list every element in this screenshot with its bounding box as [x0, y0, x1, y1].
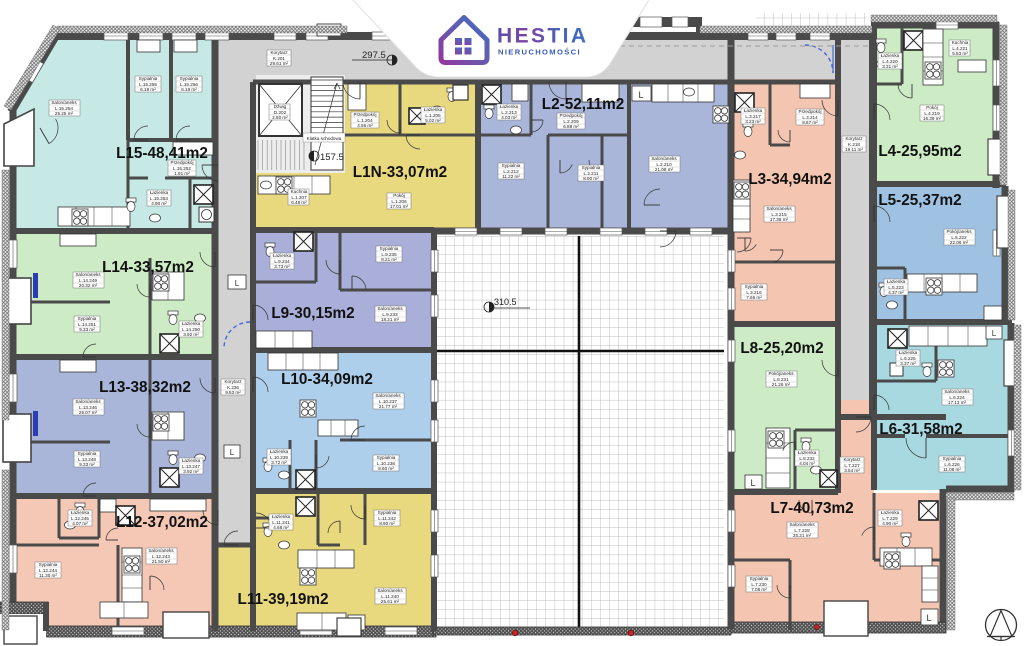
svg-text:Salon/aneks: Salon/aneks: [51, 100, 77, 105]
svg-text:297.5: 297.5: [362, 50, 386, 61]
svg-text:Salon/aneks: Salon/aneks: [377, 588, 403, 593]
svg-text:Przedpokój: Przedpokój: [560, 113, 583, 118]
svg-text:Salon/aneks: Salon/aneks: [377, 306, 403, 311]
svg-text:L12-37,02m2: L12-37,02m2: [116, 514, 208, 531]
svg-text:3.92 m²: 3.92 m²: [183, 332, 199, 337]
svg-text:3.72 m²: 3.72 m²: [271, 460, 287, 465]
svg-text:21.77 m²: 21.77 m²: [379, 404, 398, 409]
svg-text:4.37 m²: 4.37 m²: [888, 290, 904, 295]
svg-text:5.63 m²: 5.63 m²: [952, 51, 968, 56]
svg-text:Salon/aneks: Salon/aneks: [148, 548, 174, 553]
svg-text:Przedpokój: Przedpokój: [354, 112, 377, 117]
svg-text:9.33 m²: 9.33 m²: [79, 327, 95, 332]
svg-text:4.07 m²: 4.07 m²: [72, 521, 88, 526]
svg-text:4.56 m²: 4.56 m²: [357, 123, 373, 128]
svg-text:Salon/aneks: Salon/aneks: [789, 522, 815, 527]
svg-text:Łazienka: Łazienka: [899, 350, 918, 355]
svg-text:L7-40,73m2: L7-40,73m2: [770, 500, 853, 517]
svg-text:Pokój: Pokój: [926, 105, 938, 110]
svg-text:4.90 m²: 4.90 m²: [882, 521, 898, 526]
svg-text:16.39 m²: 16.39 m²: [923, 116, 942, 121]
svg-text:L: L: [992, 329, 997, 338]
svg-text:11.30 m²: 11.30 m²: [39, 573, 57, 578]
svg-text:25.25 m²: 25.25 m²: [55, 111, 74, 116]
svg-text:Łazienka: Łazienka: [272, 514, 291, 519]
svg-text:Łazienka: Łazienka: [744, 108, 763, 113]
svg-text:19.11 m²: 19.11 m²: [845, 147, 863, 152]
svg-text:Łazienka: Łazienka: [500, 104, 519, 109]
svg-text:9.33 m²: 9.33 m²: [79, 462, 95, 467]
svg-text:Korytarz: Korytarz: [845, 136, 863, 141]
svg-text:L6-31,58m2: L6-31,58m2: [879, 421, 962, 438]
svg-text:2.80 m²: 2.80 m²: [272, 115, 288, 120]
svg-text:Salon/aneks: Salon/aneks: [75, 272, 101, 277]
svg-text:3.73 m²: 3.73 m²: [274, 264, 290, 269]
svg-text:4.68 m²: 4.68 m²: [273, 525, 289, 530]
svg-text:L9-30,15m2: L9-30,15m2: [271, 305, 354, 322]
svg-text:22.06 m²: 22.06 m²: [950, 240, 969, 245]
svg-text:Salon/aneks: Salon/aneks: [651, 156, 677, 161]
svg-text:6.48 m²: 6.48 m²: [291, 200, 307, 205]
svg-text:NIERUCHOMOŚCI: NIERUCHOMOŚCI: [498, 48, 581, 57]
svg-text:Salon/aneks: Salon/aneks: [75, 399, 101, 404]
svg-text:Łazienka: Łazienka: [424, 107, 443, 112]
svg-text:L10-34,09m2: L10-34,09m2: [281, 371, 373, 388]
svg-text:17.13 m²: 17.13 m²: [948, 400, 967, 405]
svg-text:157.5: 157.5: [320, 152, 344, 163]
svg-text:Przedpokój: Przedpokój: [799, 109, 822, 114]
svg-text:L1N-33,07m2: L1N-33,07m2: [353, 164, 447, 181]
svg-text:HESTIA: HESTIA: [497, 25, 588, 48]
svg-text:4.04 m²: 4.04 m²: [799, 461, 815, 466]
svg-text:L14-33,57m2: L14-33,57m2: [102, 259, 194, 276]
svg-text:6.19 m²: 6.19 m²: [181, 87, 197, 92]
svg-text:L5-25,37m2: L5-25,37m2: [878, 192, 961, 209]
svg-text:25.07 m²: 25.07 m²: [79, 410, 98, 415]
svg-text:8.67 m²: 8.67 m²: [802, 120, 818, 125]
svg-text:20.32 m²: 20.32 m²: [79, 283, 98, 288]
svg-text:Sypialnia: Sypialnia: [39, 562, 58, 567]
svg-text:L: L: [235, 279, 240, 288]
svg-text:Sypialnia: Sypialnia: [377, 455, 396, 460]
svg-text:Sypialnia: Sypialnia: [78, 451, 97, 456]
svg-text:Łazienka: Łazienka: [881, 510, 900, 515]
svg-text:8.90 m²: 8.90 m²: [379, 521, 395, 526]
svg-text:3.37 m²: 3.37 m²: [900, 361, 916, 366]
svg-text:L13-38,32m2: L13-38,32m2: [99, 379, 191, 396]
svg-text:6.19 m²: 6.19 m²: [140, 87, 156, 92]
svg-text:Sypialnia: Sypialnia: [750, 576, 769, 581]
svg-text:8.60 m²: 8.60 m²: [378, 466, 394, 471]
svg-text:Korytarz: Korytarz: [224, 379, 242, 384]
svg-text:21.08 m²: 21.08 m²: [655, 167, 674, 172]
svg-text:Łazienka: Łazienka: [150, 190, 169, 195]
svg-text:25.61 m²: 25.61 m²: [381, 599, 400, 604]
svg-text:Sypialnia: Sypialnia: [943, 456, 962, 461]
svg-text:Kuchnia: Kuchnia: [291, 189, 308, 194]
svg-text:L: L: [926, 613, 931, 623]
svg-text:21.50 m²: 21.50 m²: [152, 559, 171, 564]
svg-text:Łazienka: Łazienka: [182, 321, 201, 326]
svg-text:Sypialnia: Sypialnia: [139, 76, 158, 81]
svg-text:L: L: [750, 478, 755, 488]
svg-text:Pokój: Pokój: [393, 193, 405, 198]
svg-text:L4-25,95m2: L4-25,95m2: [878, 143, 961, 160]
svg-text:4.90 m²: 4.90 m²: [151, 201, 167, 206]
svg-text:18.21 m²: 18.21 m²: [381, 317, 400, 322]
svg-text:Sypialnia: Sypialnia: [745, 284, 764, 289]
svg-text:3.31 m²: 3.31 m²: [882, 64, 898, 69]
svg-text:L3-34,94m2: L3-34,94m2: [748, 171, 831, 188]
svg-text:Sypialnia: Sypialnia: [180, 76, 199, 81]
svg-text:Sypialnia: Sypialnia: [78, 316, 97, 321]
svg-text:Dźwig: Dźwig: [274, 104, 287, 109]
svg-text:L15-48,41m2: L15-48,41m2: [116, 145, 208, 162]
svg-text:L11-39,19m2: L11-39,19m2: [238, 591, 329, 608]
svg-text:11.22 m²: 11.22 m²: [502, 174, 520, 179]
svg-text:25.21 m²: 25.21 m²: [793, 533, 812, 538]
svg-text:Sypialnia: Sypialnia: [378, 510, 397, 515]
svg-text:Sypialnia: Sypialnia: [502, 163, 521, 168]
svg-text:Łazienka: Łazienka: [71, 510, 90, 515]
svg-text:29.61 m²: 29.61 m²: [270, 61, 289, 66]
svg-text:3.92 m²: 3.92 m²: [183, 469, 199, 474]
svg-text:Łazienka: Łazienka: [270, 449, 289, 454]
svg-text:Salon/aneks: Salon/aneks: [766, 206, 792, 211]
svg-text:Łazienka: Łazienka: [887, 279, 906, 284]
svg-text:L: L: [638, 90, 643, 100]
svg-text:L: L: [230, 448, 235, 457]
svg-text:Łazienka: Łazienka: [798, 450, 817, 455]
svg-text:6.88 m²: 6.88 m²: [563, 124, 579, 129]
svg-text:Sypialnia: Sypialnia: [380, 246, 399, 251]
svg-text:1.91 m²: 1.91 m²: [174, 171, 190, 176]
svg-text:7.08 m²: 7.08 m²: [751, 587, 767, 592]
svg-text:8.90 m²: 8.90 m²: [583, 176, 599, 181]
svg-text:Łazienka: Łazienka: [273, 253, 292, 258]
svg-text:Pokój/aneks: Pokój/aneks: [768, 371, 794, 376]
svg-text:L8-25,20m2: L8-25,20m2: [740, 340, 823, 357]
svg-text:L2-52,11m2: L2-52,11m2: [542, 96, 625, 113]
svg-text:21.26 m²: 21.26 m²: [772, 382, 791, 387]
svg-text:4.03 m²: 4.03 m²: [501, 115, 517, 120]
svg-text:Salon/aneks: Salon/aneks: [375, 393, 401, 398]
svg-text:3.54 m²: 3.54 m²: [844, 468, 860, 473]
svg-text:310.5: 310.5: [494, 297, 517, 307]
svg-text:Kuchnia: Kuchnia: [952, 40, 969, 45]
svg-text:3.23 m²: 3.23 m²: [745, 119, 761, 124]
svg-text:7.66 m²: 7.66 m²: [746, 295, 762, 300]
svg-text:Klatka schodowa: Klatka schodowa: [307, 136, 342, 141]
svg-text:17.01 m²: 17.01 m²: [390, 204, 409, 209]
svg-text:Łazienka: Łazienka: [182, 458, 201, 463]
svg-text:17.38 m²: 17.38 m²: [770, 217, 789, 222]
svg-text:Łazienka: Łazienka: [881, 53, 900, 58]
svg-text:Korytarz: Korytarz: [843, 457, 861, 462]
svg-text:5.02 m²: 5.02 m²: [425, 118, 441, 123]
svg-text:Salon/aneks: Salon/aneks: [944, 389, 970, 394]
svg-text:Sypialnia: Sypialnia: [582, 165, 601, 170]
svg-text:8.21 m²: 8.21 m²: [381, 257, 397, 262]
svg-text:Pokój/aneks: Pokój/aneks: [946, 229, 972, 234]
svg-text:11.08 m²: 11.08 m²: [943, 467, 961, 472]
svg-text:Korytarz: Korytarz: [270, 50, 288, 55]
svg-text:9.53 m²: 9.53 m²: [225, 390, 241, 395]
